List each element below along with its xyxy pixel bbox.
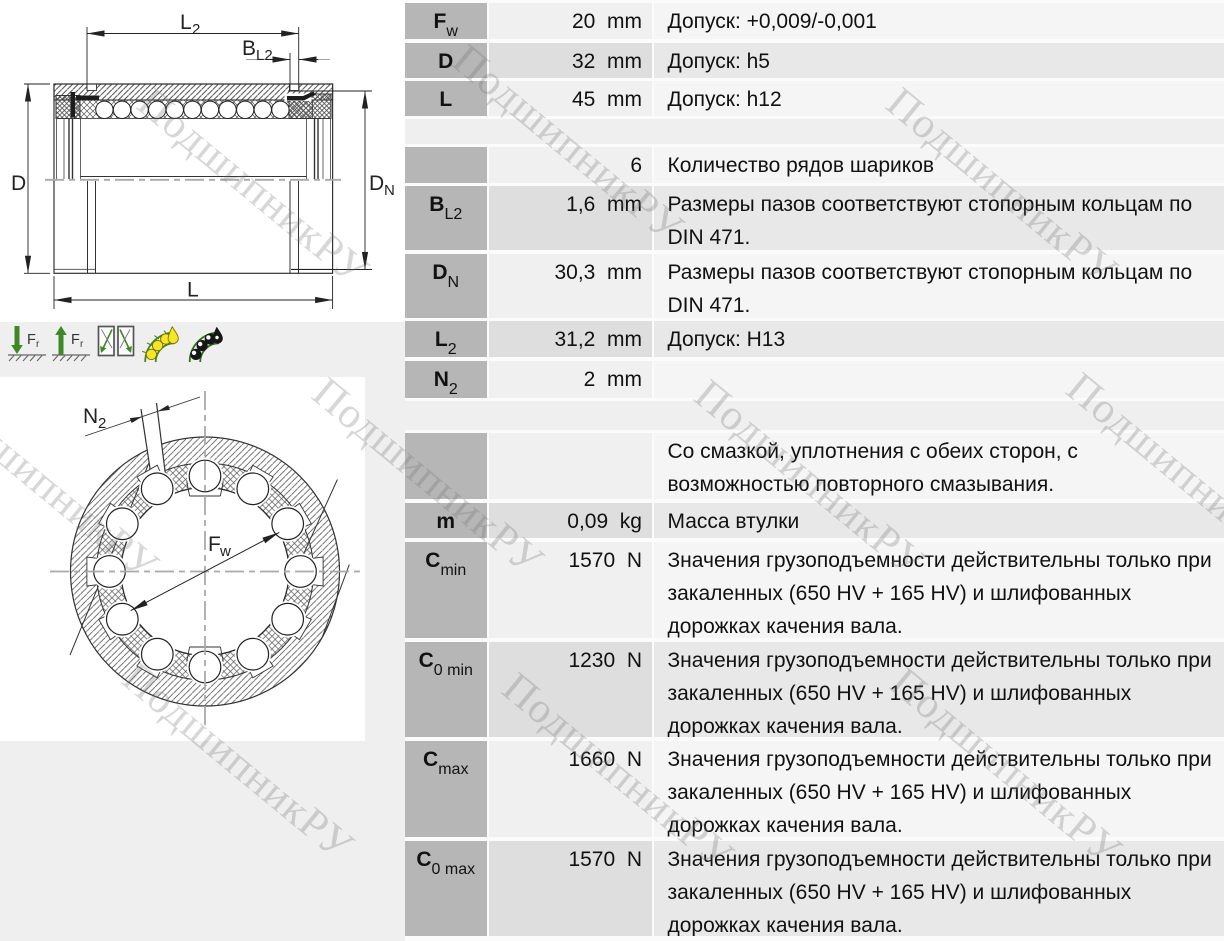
svg-text:w: w <box>219 543 231 560</box>
svg-text:N: N <box>83 405 98 428</box>
svg-text:F: F <box>27 332 36 348</box>
svg-text:B: B <box>242 37 256 60</box>
svg-text:D: D <box>11 172 26 195</box>
svg-text:F: F <box>208 533 221 556</box>
svg-text:r: r <box>36 339 40 350</box>
svg-text:L: L <box>180 11 192 34</box>
svg-text:D: D <box>369 172 384 195</box>
svg-text:L2: L2 <box>256 47 273 64</box>
svg-text:F: F <box>71 332 80 348</box>
svg-text:L: L <box>187 279 199 302</box>
svg-text:2: 2 <box>192 21 200 38</box>
svg-text:r: r <box>80 339 84 350</box>
svg-text:N: N <box>384 182 395 199</box>
svg-text:2: 2 <box>98 415 106 432</box>
